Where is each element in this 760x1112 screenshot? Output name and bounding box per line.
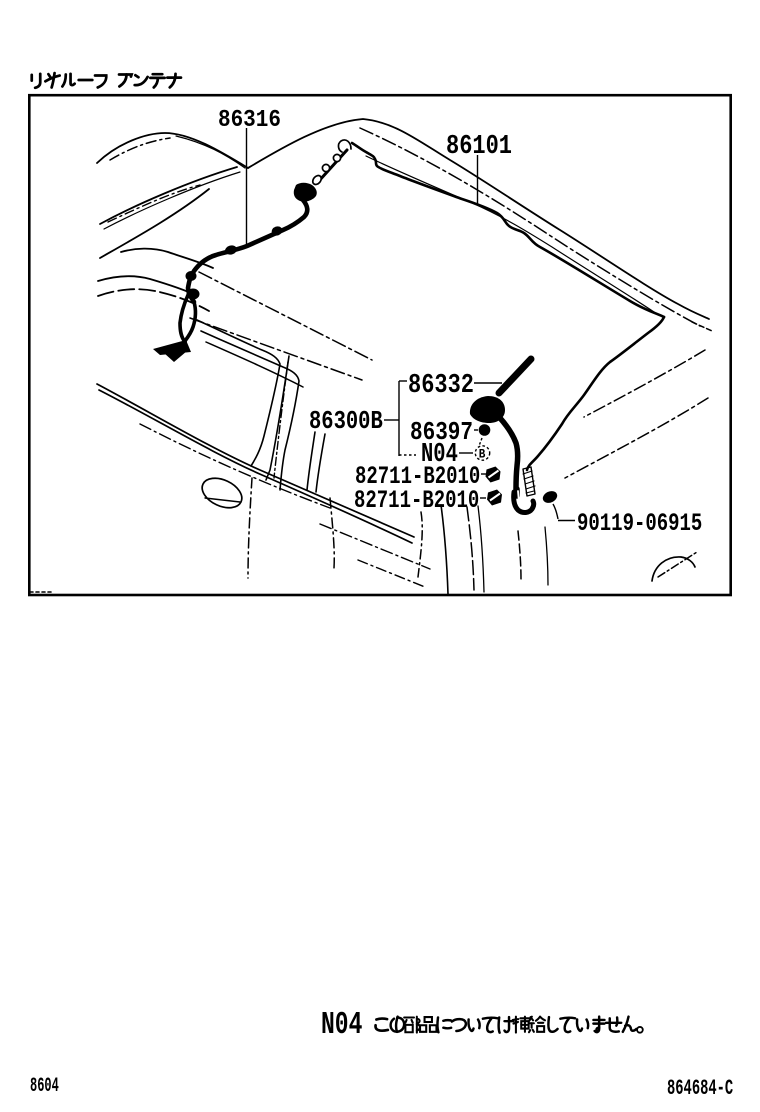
svg-text:8604: 8604: [30, 1075, 59, 1098]
svg-text:86300B: 86300B: [309, 407, 383, 436]
svg-text:864684-C: 864684-C: [667, 1076, 733, 1101]
svg-text:86101: 86101: [446, 131, 512, 162]
svg-text:B: B: [479, 447, 486, 462]
svg-text:86332: 86332: [408, 371, 474, 400]
svg-text:N04: N04: [321, 1008, 362, 1043]
svg-text:82711-B2010: 82711-B2010: [354, 487, 479, 515]
svg-text:86316: 86316: [218, 106, 281, 134]
svg-text:90119-06915: 90119-06915: [577, 510, 702, 538]
